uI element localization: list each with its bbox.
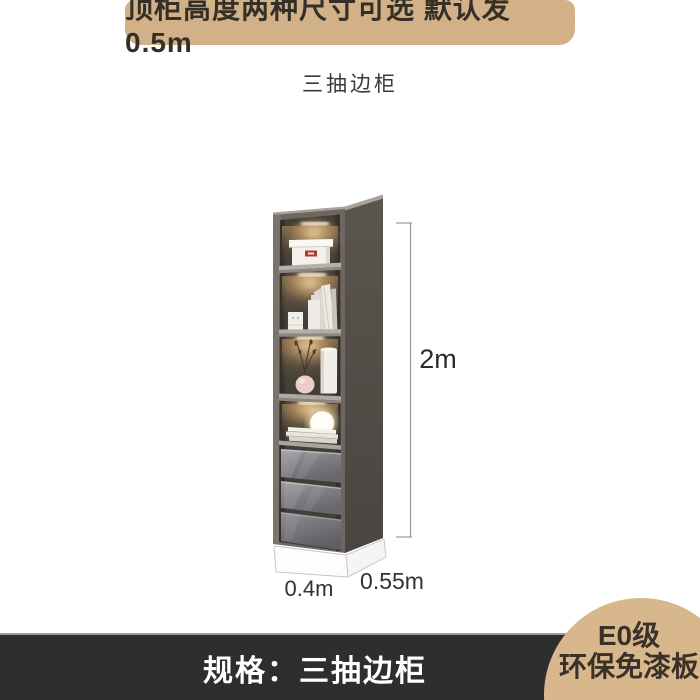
badge-grade-text: E0级 xyxy=(544,620,700,651)
product-figure: 2m 0.4m 0.55m xyxy=(0,0,700,700)
depth-dimension-label: 0.55m xyxy=(360,568,424,594)
cabinet-side-panel xyxy=(345,197,383,553)
height-dimension-label: 2m xyxy=(419,344,457,374)
spec-bar-text: 规格：三抽边柜 xyxy=(203,646,427,690)
cabinet-illustration xyxy=(273,195,386,578)
product-detail-page: 顶柜高度两种尺寸可选 默认发0.5m 三抽边柜 xyxy=(0,0,700,700)
drawer-fronts xyxy=(281,449,341,550)
drawer-1 xyxy=(281,449,341,483)
width-dimension-label: 0.4m xyxy=(285,576,334,601)
height-dimension xyxy=(396,223,412,537)
badge-material-text: 环保免漆板 xyxy=(544,651,700,682)
